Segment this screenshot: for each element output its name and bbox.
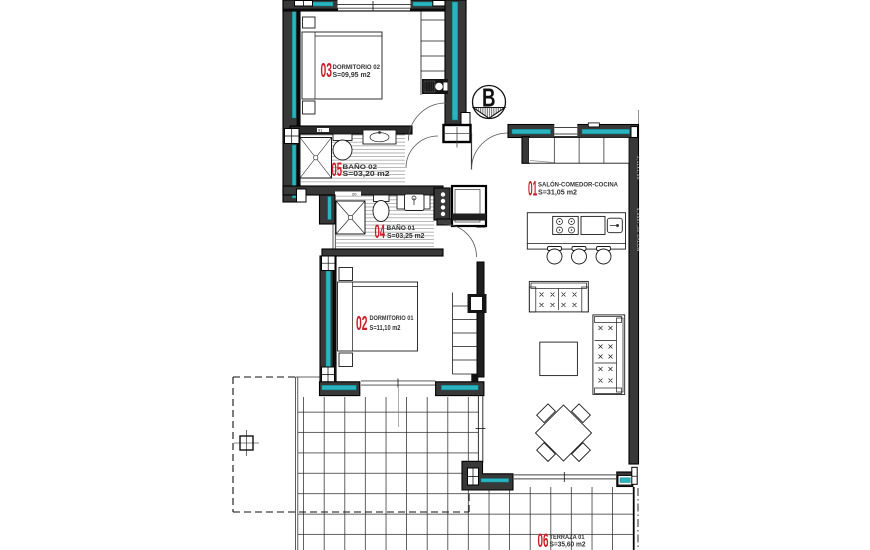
- svg-text:S=03,20 m2: S=03,20 m2: [343, 170, 390, 178]
- svg-text:2,11x1,40: 2,11x1,40: [636, 156, 641, 180]
- svg-text:S=35,60 m2: S=35,60 m2: [550, 540, 586, 548]
- svg-text:02: 02: [356, 313, 368, 335]
- svg-text:DORMITORIO 01: DORMITORIO 01: [370, 315, 414, 322]
- svg-text:05: 05: [332, 159, 343, 181]
- svg-text:01: 01: [528, 177, 537, 200]
- svg-text:4,04x7,35 SALON: 4,04x7,35 SALON: [636, 208, 641, 252]
- svg-text:B: B: [482, 83, 496, 113]
- svg-text:S=11,10 m2: S=11,10 m2: [370, 324, 401, 332]
- svg-text:06: 06: [538, 530, 549, 550]
- svg-text:BAÑO 01: BAÑO 01: [387, 223, 416, 232]
- svg-text:S=03,25 m2: S=03,25 m2: [387, 232, 425, 240]
- svg-text:S=09,95 m2: S=09,95 m2: [333, 71, 371, 79]
- svg-text:04: 04: [375, 221, 386, 243]
- svg-text:91: 91: [318, 128, 323, 133]
- svg-text:03: 03: [321, 60, 333, 82]
- svg-text:SALÓN-COMEDOR-COCINA: SALÓN-COMEDOR-COCINA: [538, 179, 618, 188]
- svg-text:S=31,05 m2: S=31,05 m2: [538, 188, 577, 196]
